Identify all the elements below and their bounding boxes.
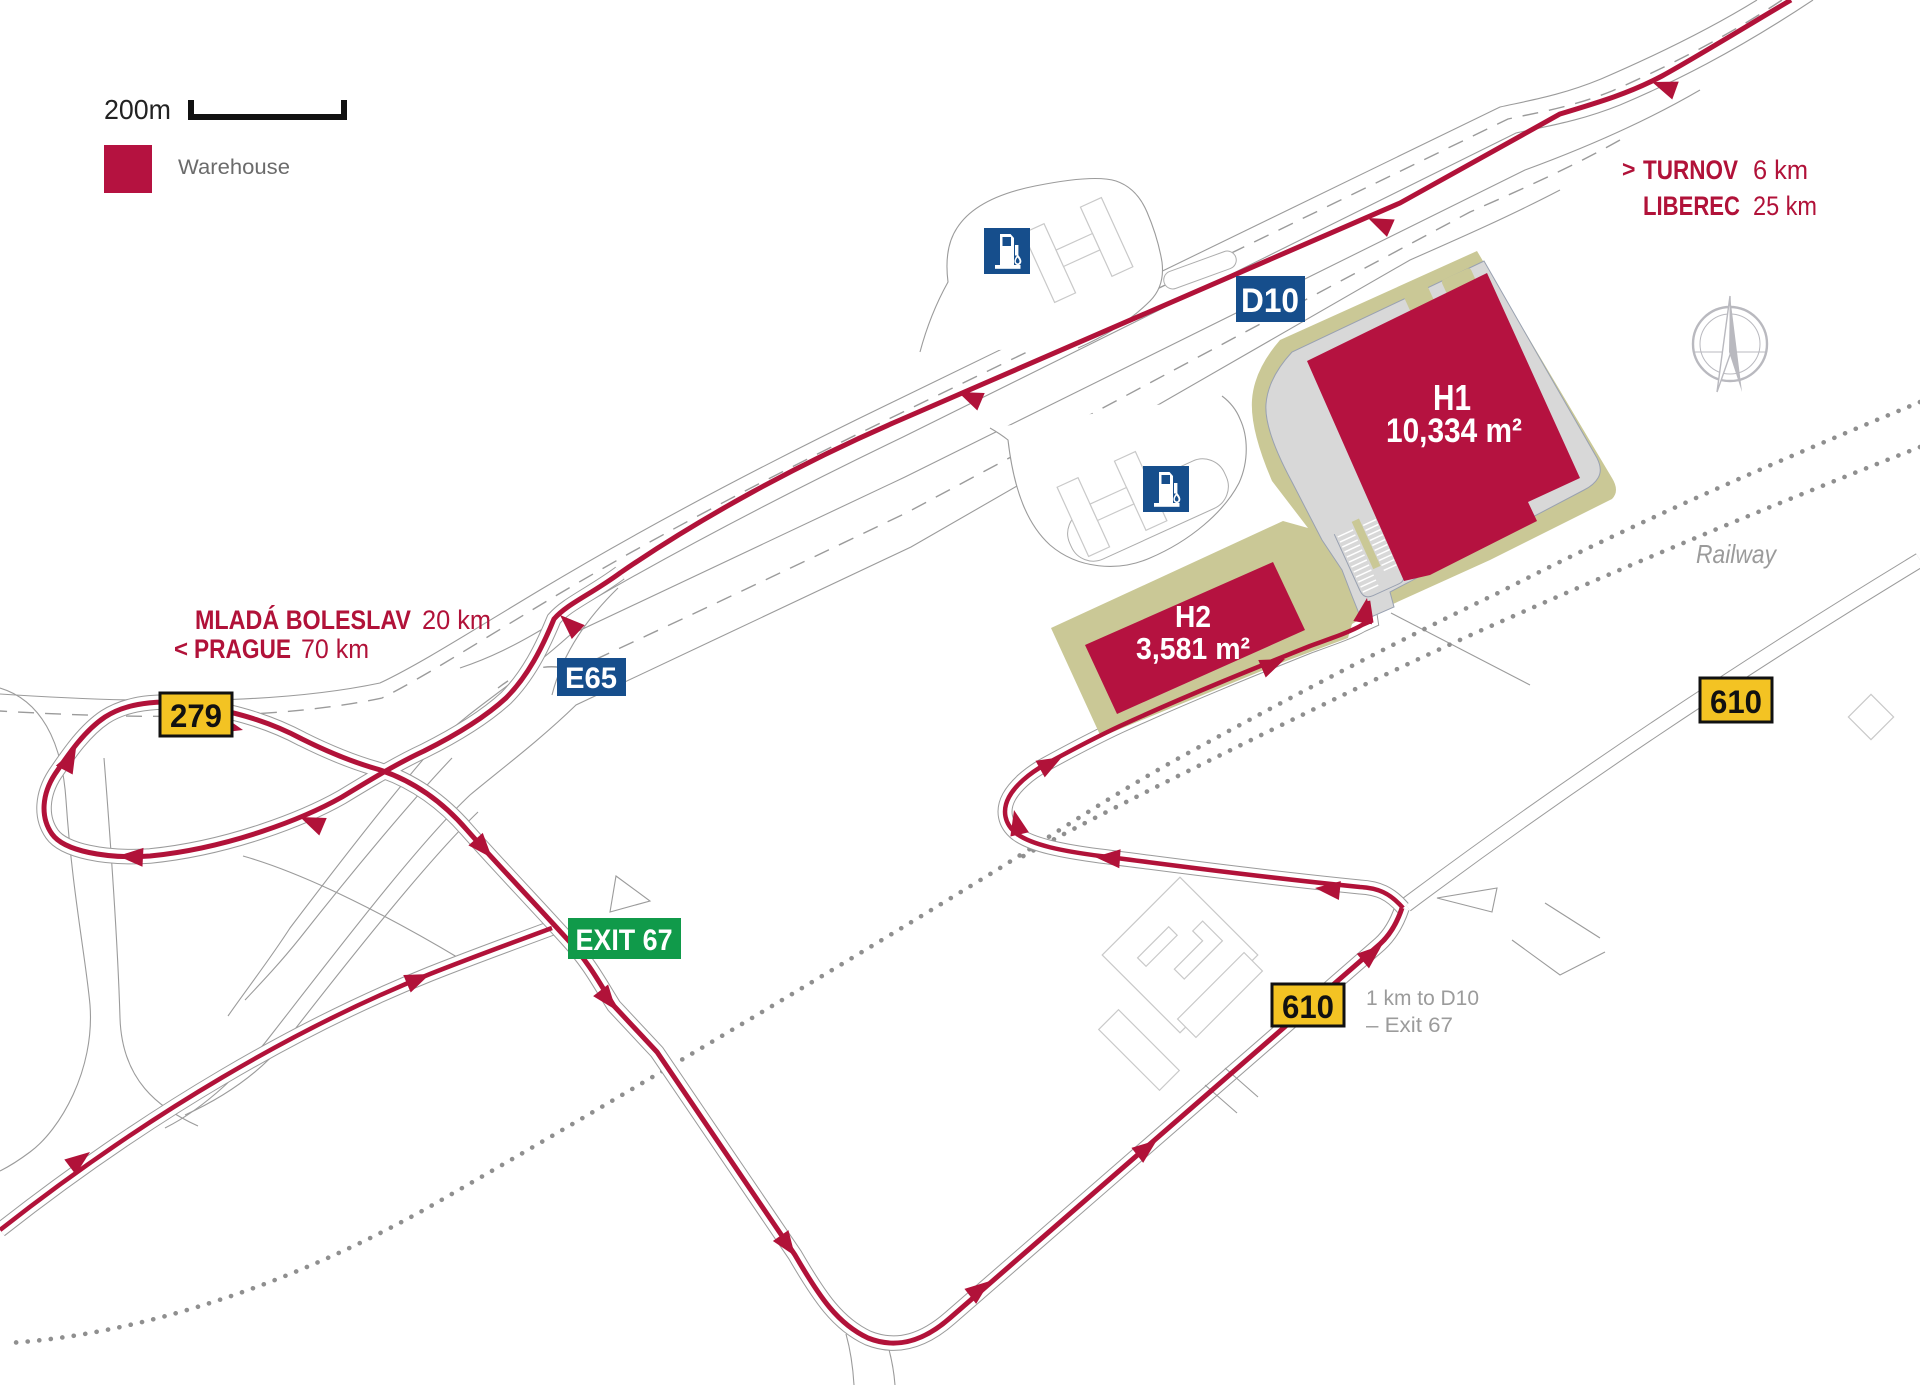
- svg-text:Railway: Railway: [1696, 539, 1778, 569]
- svg-text:70 km: 70 km: [301, 634, 369, 664]
- svg-text:6 km: 6 km: [1753, 155, 1808, 185]
- svg-text:H2: H2: [1175, 599, 1211, 634]
- svg-text:EXIT 67: EXIT 67: [576, 924, 673, 957]
- svg-text:PRAGUE: PRAGUE: [194, 634, 291, 664]
- svg-text:LIBEREC: LIBEREC: [1643, 191, 1740, 221]
- svg-text:25 km: 25 km: [1753, 191, 1817, 221]
- svg-text:610: 610: [1282, 989, 1334, 1025]
- svg-text:610: 610: [1710, 684, 1762, 720]
- svg-text:279: 279: [170, 698, 222, 734]
- svg-text:D10: D10: [1241, 282, 1299, 320]
- svg-text:Warehouse: Warehouse: [178, 156, 290, 179]
- svg-text:<: <: [174, 636, 188, 663]
- svg-text:TURNOV: TURNOV: [1643, 155, 1738, 185]
- svg-text:200m: 200m: [104, 94, 171, 125]
- svg-text:10,334 m²: 10,334 m²: [1386, 412, 1522, 450]
- svg-text:20 km: 20 km: [422, 605, 491, 635]
- svg-text:1 km to D10: 1 km to D10: [1366, 987, 1479, 1010]
- svg-text:– Exit 67: – Exit 67: [1366, 1014, 1453, 1037]
- svg-text:MLADÁ BOLESLAV: MLADÁ BOLESLAV: [195, 604, 411, 635]
- svg-text:E65: E65: [565, 662, 617, 695]
- svg-text:>: >: [1622, 156, 1635, 182]
- svg-text:3,581 m²: 3,581 m²: [1136, 631, 1250, 666]
